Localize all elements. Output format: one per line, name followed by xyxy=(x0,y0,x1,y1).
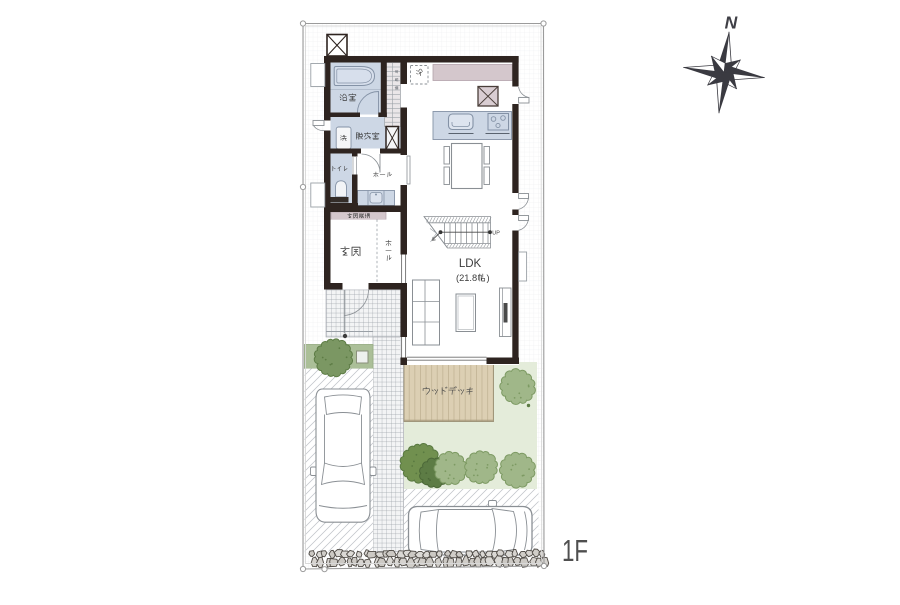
svg-text:1F: 1F xyxy=(562,533,588,567)
svg-text:LDK: LDK xyxy=(459,258,482,270)
svg-text:(21.8: (21.8 xyxy=(456,273,477,283)
svg-text:N: N xyxy=(725,13,738,33)
svg-text:): ) xyxy=(487,273,490,283)
svg-text:UP: UP xyxy=(492,230,500,236)
